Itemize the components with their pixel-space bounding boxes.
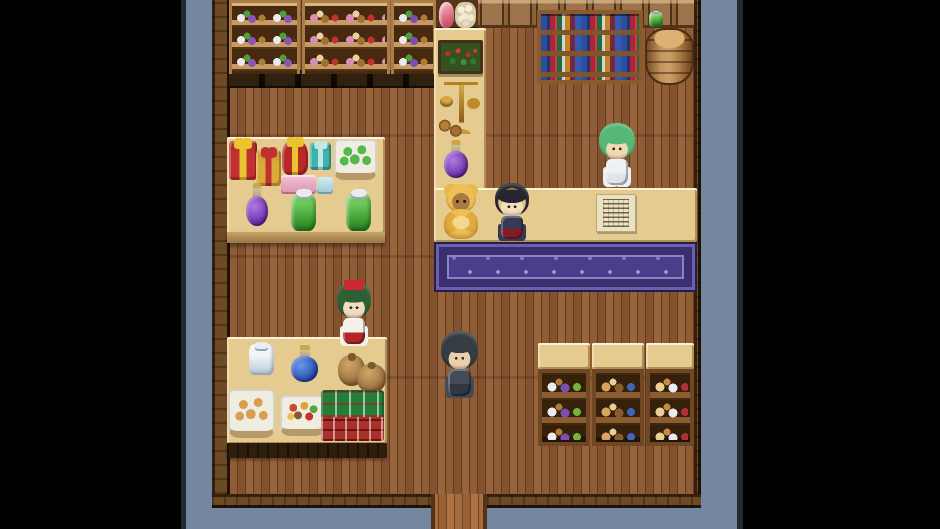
player-character[interactable] — [438, 330, 481, 397]
shelf-right-2-top — [592, 343, 644, 369]
plaid-cloth — [321, 390, 384, 441]
basket-vegetables — [280, 395, 325, 436]
npc-shopkeeper[interactable] — [596, 122, 638, 186]
shelf-right-1 — [538, 369, 590, 446]
gift-box-round-red — [282, 140, 308, 175]
shelf-right-2 — [592, 369, 644, 446]
shelf-right-3 — [646, 369, 694, 446]
shelf-right-1-top — [538, 343, 590, 369]
frame-edge-right — [737, 0, 743, 529]
potion-blue — [291, 345, 318, 382]
teddy-bear-plush — [442, 184, 480, 239]
shelf-jars-left — [229, 0, 300, 74]
jar-white-salt — [249, 344, 274, 375]
wall-south-right — [487, 494, 701, 508]
box-teal-small — [317, 177, 333, 194]
green-box-on-cabinet — [649, 12, 663, 27]
basket-bread — [228, 389, 275, 438]
gift-box-gold — [256, 150, 281, 186]
frame-edge-left — [181, 0, 186, 529]
shelf-jars-right — [391, 0, 436, 74]
gift-box-teal — [310, 143, 331, 170]
barrel — [645, 28, 694, 85]
basket-green-fruit — [334, 139, 377, 180]
gift-box-red — [229, 141, 257, 180]
shelf-goods-plush — [302, 0, 390, 74]
purple-rug — [434, 242, 697, 292]
ham-and-eggs-table — [436, 0, 478, 30]
npc-girl-bonnet[interactable] — [492, 182, 532, 240]
flower-planter — [438, 40, 483, 74]
wall-south-left — [212, 494, 431, 508]
maiden-hair-bow — [344, 280, 364, 290]
gift-table-front — [227, 232, 385, 243]
price-list-paper — [596, 194, 636, 232]
potion-purple-counter — [444, 140, 468, 178]
provisions-table-front — [227, 443, 387, 458]
bookshelf — [537, 10, 643, 84]
potion-purple-table — [246, 183, 268, 226]
jar-green-left — [291, 193, 316, 231]
game-viewport[interactable] — [0, 0, 940, 529]
clay-pots — [437, 116, 463, 140]
jar-green-right — [346, 193, 371, 231]
exit-doorway-floor[interactable] — [431, 494, 487, 529]
sack-front — [357, 364, 386, 393]
shelf-right-3-top — [646, 343, 694, 369]
